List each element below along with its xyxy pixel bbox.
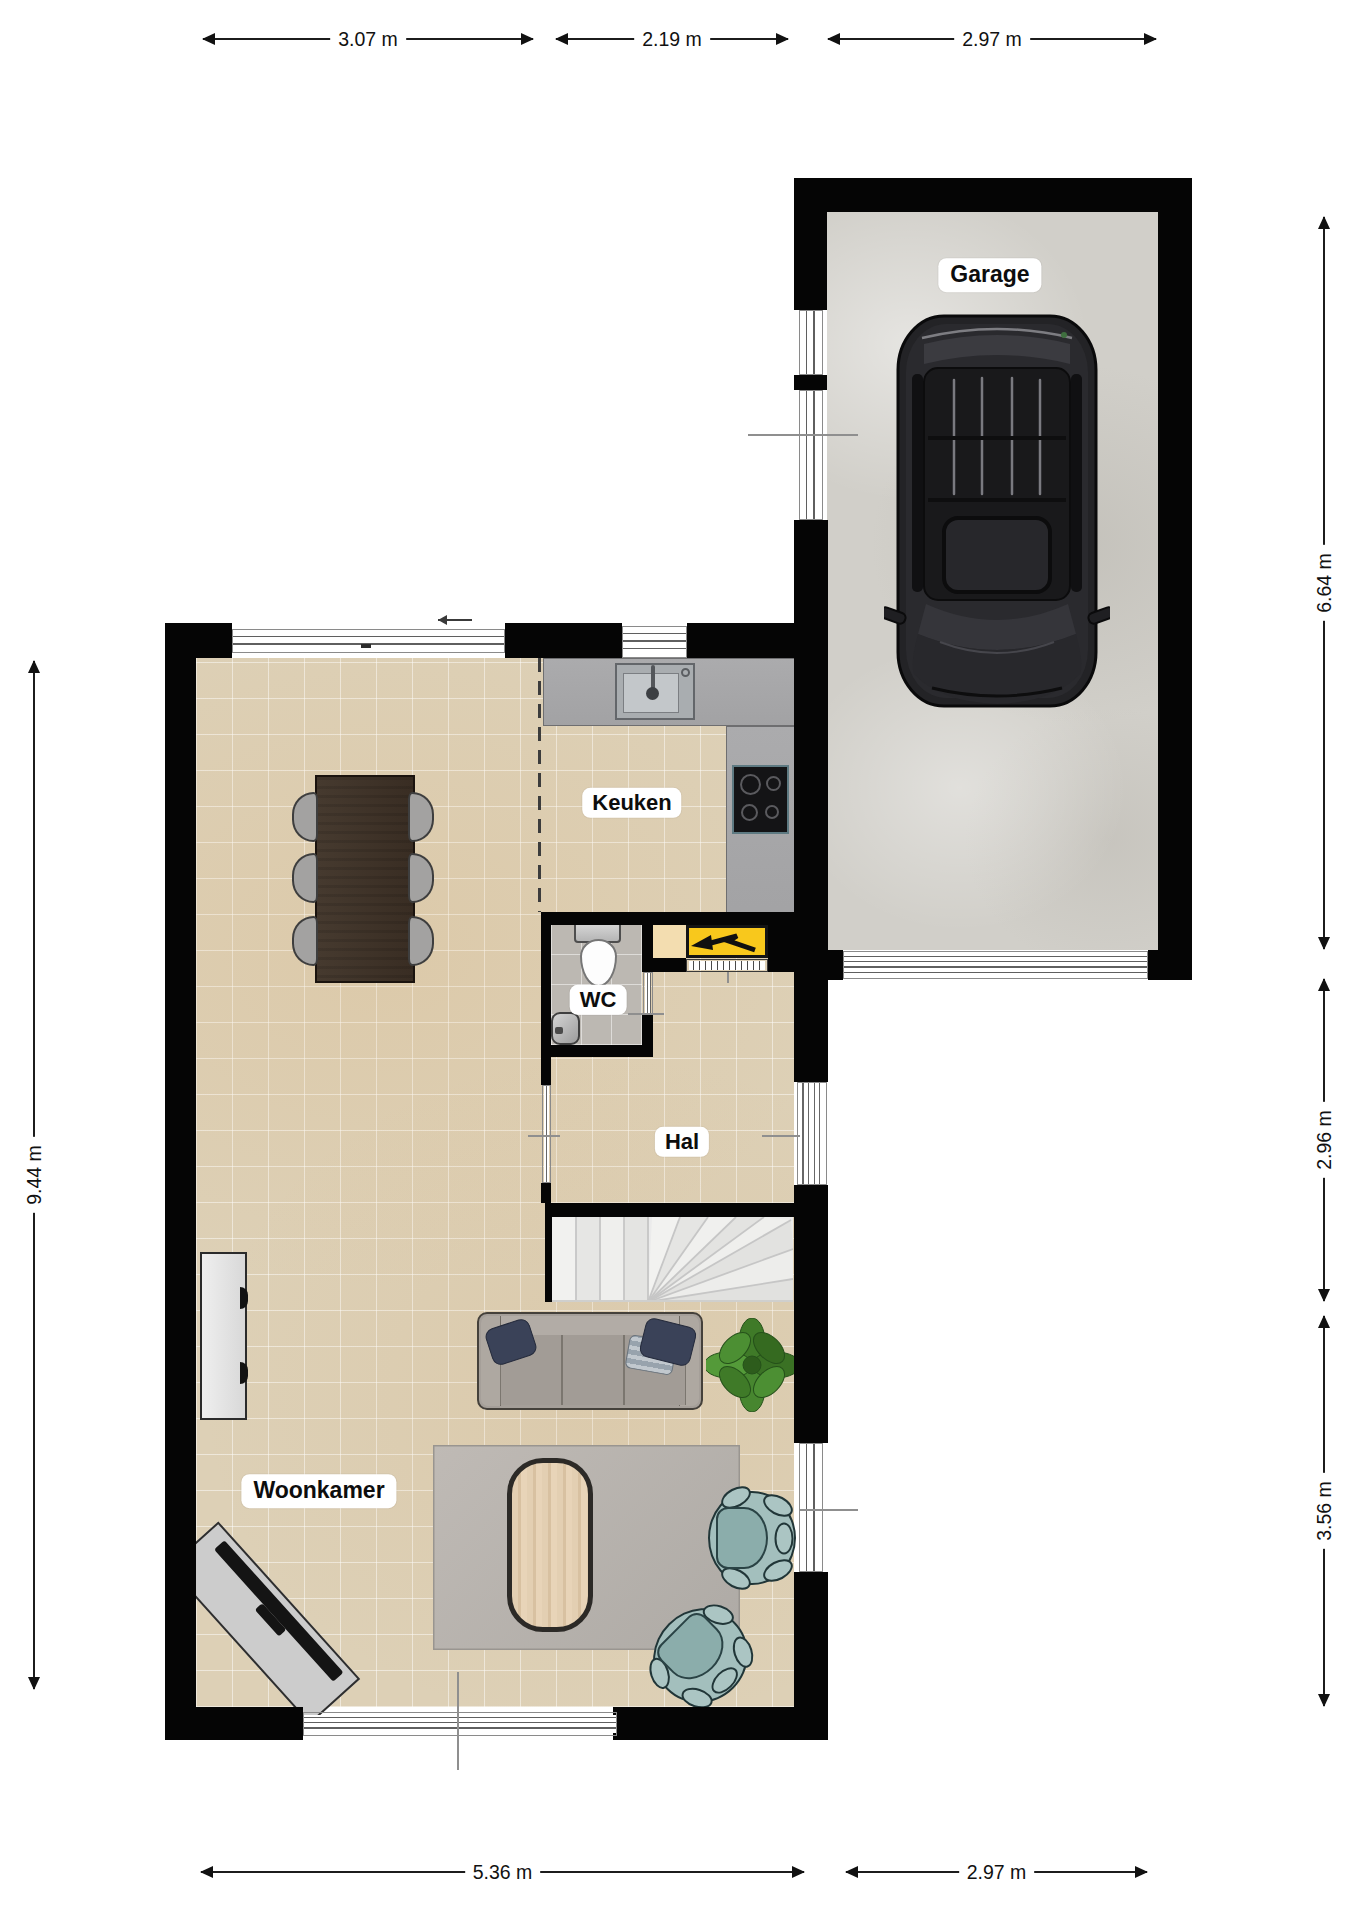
lightning-arrow-icon [689,928,765,955]
dimension-top-1: 3.07 m [202,28,534,50]
front-door [797,1082,827,1185]
entry-direction-arrow-icon [438,614,472,626]
wall [505,623,622,658]
dimension-label: 2.97 m [959,1861,1035,1884]
window [303,1712,617,1736]
radiator [686,959,768,972]
burner [740,774,761,795]
sight-line [528,1135,560,1137]
burner [765,805,779,819]
sight-line [800,1509,858,1511]
wall [541,1045,653,1057]
electric-meter [686,925,768,958]
dimension-top-3: 2.97 m [827,28,1157,50]
dimension-label: 5.36 m [465,1861,541,1884]
burner [741,804,758,821]
dimension-label: 3.56 m [1313,1473,1336,1549]
floorplan-canvas: Garage Keuken WC Hal Woonkamer 3.07 m 2.… [0,0,1358,1920]
kitchen-sink [615,663,695,720]
hal-door [542,1085,551,1183]
dimension-right-1: 6.64 m [1313,216,1335,950]
window [232,629,505,653]
armchair [708,1491,796,1585]
wc-basin-faucet [555,1027,563,1034]
room-label-garage: Garage [938,258,1041,292]
staircase [552,1217,793,1302]
sight-line [457,1672,459,1770]
dimension-right-3: 3.56 m [1313,1315,1335,1707]
dimension-left-1: 9.44 m [23,660,45,1690]
wall [768,958,795,972]
wall [794,1185,828,1443]
garage-door [843,951,1148,979]
sight-line [748,434,858,436]
sight-line [762,1135,800,1137]
window-center-tick [361,644,371,648]
wall [687,623,795,658]
room-label-keuken: Keuken [582,788,681,818]
wall [794,178,1192,212]
wall [541,912,795,925]
armchair-cushion [716,1507,768,1569]
wall [165,1707,303,1740]
wall [642,1015,653,1045]
wall [1148,950,1192,980]
sight-line [628,1013,664,1015]
window [622,626,687,658]
kitchen-sink-knob [681,668,690,677]
wall [545,1217,552,1302]
wall [1158,178,1192,980]
room-label-hal: Hal [655,1127,709,1157]
dimension-right-2: 2.96 m [1313,978,1335,1302]
car [884,312,1110,710]
sideboard-handle [240,1287,248,1309]
wall [768,925,794,958]
wall [545,1203,795,1217]
dimension-label: 6.64 m [1313,545,1336,621]
wc-hand-basin [551,1012,580,1045]
meter-lead-line [727,972,729,983]
wall [165,623,196,1740]
dimension-label: 2.96 m [1313,1102,1336,1178]
keuken-open-boundary-dashed-line [538,658,541,912]
room-label-wc: WC [570,985,627,1015]
room-label-woonkamer: Woonkamer [241,1474,396,1508]
kitchen-faucet-head [646,687,659,700]
wc-door [643,972,653,1015]
coffee-table [507,1458,593,1632]
dimension-label: 2.19 m [634,28,710,51]
sideboard-handle [240,1362,248,1384]
wall [642,925,653,972]
dimension-label: 9.44 m [23,1137,46,1213]
armchair-petal [775,1523,794,1555]
sideboard [200,1252,247,1420]
wall [794,1572,828,1740]
wall [794,375,827,390]
garage-window [799,390,823,520]
window [799,1443,823,1572]
burner [766,776,781,791]
cooktop [732,765,789,834]
wall [541,925,551,1085]
garage-window [799,310,823,375]
dimension-bottom-2: 2.97 m [845,1861,1148,1883]
wall [794,520,828,1082]
sofa-cushion [562,1335,624,1405]
meter-backing [653,925,686,958]
dimension-label: 2.97 m [954,28,1030,51]
wall [827,950,843,980]
dimension-bottom-1: 5.36 m [200,1861,805,1883]
dimension-top-2: 2.19 m [555,28,789,50]
wall [541,1183,551,1203]
potted-plant [706,1318,798,1412]
dimension-label: 3.07 m [330,28,406,51]
dining-table [315,775,415,983]
wall [653,958,686,972]
